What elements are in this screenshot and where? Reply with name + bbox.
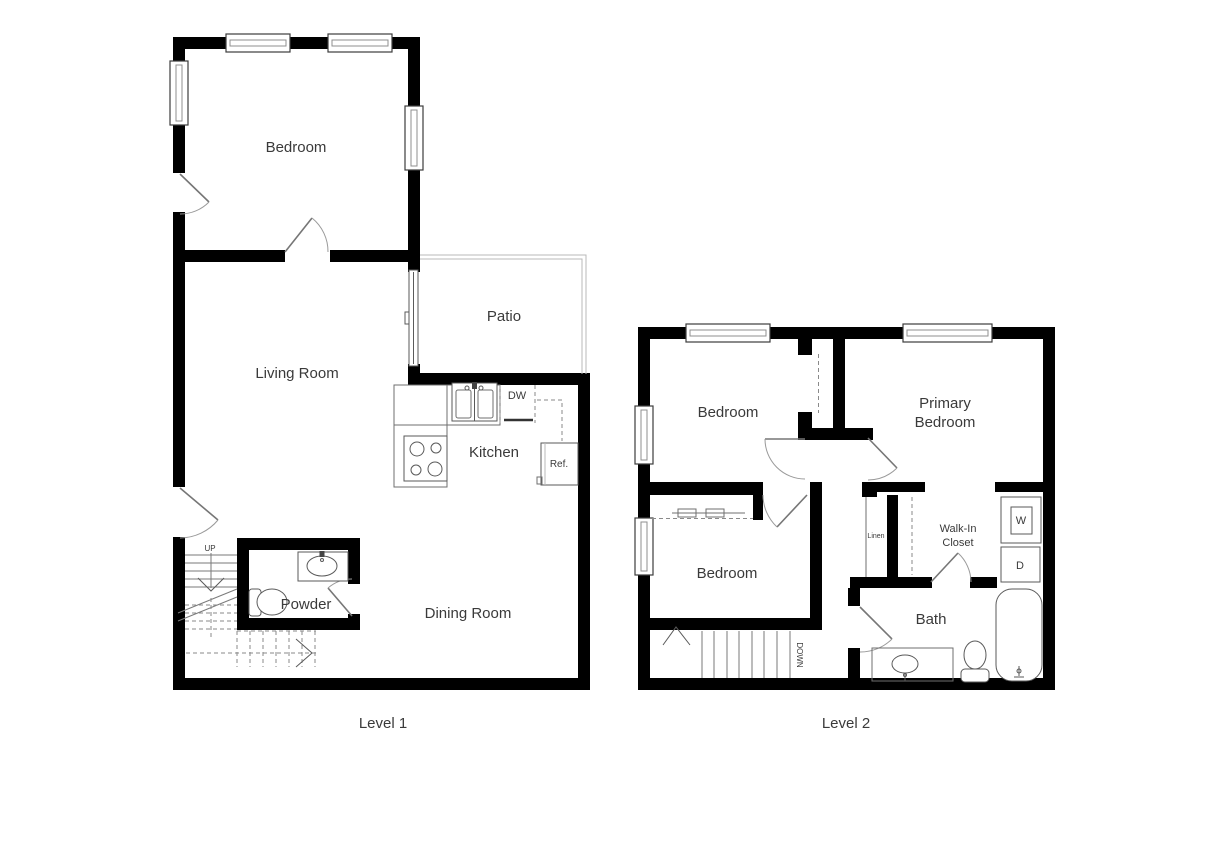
room-label-powder: Powder bbox=[281, 596, 332, 613]
label-dryer: D bbox=[1016, 560, 1024, 572]
floor-plan-page: Bedroom Living Room Patio Kitchen Powder… bbox=[0, 0, 1228, 844]
window-icon bbox=[328, 34, 392, 52]
room-label-linen: Linen bbox=[867, 533, 884, 540]
door-powder bbox=[328, 579, 352, 616]
label-dishwasher: DW bbox=[508, 390, 527, 402]
toilet-icon bbox=[961, 641, 989, 682]
window-icon bbox=[405, 106, 423, 170]
room-label-kitchen: Kitchen bbox=[469, 444, 519, 461]
door-bath bbox=[860, 607, 892, 652]
window-icon bbox=[635, 406, 653, 464]
room-label-bedroom-top: Bedroom bbox=[698, 404, 759, 421]
level2-plan: Bedroom Primary Bedroom Bedroom Walk-In … bbox=[635, 324, 1055, 732]
door-bedroom-bottom bbox=[763, 495, 807, 527]
floor-plan-canvas: Bedroom Living Room Patio Kitchen Powder… bbox=[0, 0, 1228, 844]
door-bedroom bbox=[285, 218, 328, 252]
window-icon bbox=[635, 518, 653, 575]
room-label-walk-in-line2: Closet bbox=[942, 537, 973, 549]
kitchen-fixtures bbox=[394, 382, 578, 487]
room-label-patio: Patio bbox=[487, 308, 521, 325]
closet-details bbox=[652, 354, 912, 577]
bathtub-icon bbox=[996, 589, 1042, 681]
window-icon bbox=[903, 324, 992, 342]
room-label-primary-line1: Primary bbox=[919, 395, 971, 412]
room-label-bath: Bath bbox=[916, 611, 947, 628]
label-washer: W bbox=[1016, 515, 1027, 527]
room-label-walk-in-line1: Walk-In bbox=[940, 523, 977, 535]
level1-plan: Bedroom Living Room Patio Kitchen Powder… bbox=[170, 34, 590, 732]
level1-walls bbox=[173, 37, 590, 690]
window-icon bbox=[226, 34, 290, 52]
bath-fixtures bbox=[872, 589, 1042, 682]
room-label-living-room: Living Room bbox=[255, 365, 338, 382]
label-stairs-down: DOWN bbox=[795, 642, 804, 668]
level1-title: Level 1 bbox=[359, 715, 407, 732]
room-label-primary-line2: Bedroom bbox=[915, 414, 976, 431]
vanity-sink-icon bbox=[872, 648, 953, 681]
room-label-bedroom: Bedroom bbox=[266, 139, 327, 156]
upper-cabinet-dashed bbox=[537, 400, 562, 441]
label-refrigerator: Ref. bbox=[550, 459, 568, 470]
room-label-dining-room: Dining Room bbox=[425, 605, 512, 622]
door-walk-in-closet bbox=[931, 553, 971, 582]
sink-icon bbox=[298, 551, 348, 581]
level2-walls bbox=[638, 327, 1055, 690]
door-bedroom-exterior bbox=[180, 174, 209, 214]
door-entry bbox=[180, 488, 218, 538]
label-stairs-up: UP bbox=[204, 544, 215, 553]
door-bedroom-top bbox=[765, 439, 805, 479]
sink-icon bbox=[452, 382, 497, 421]
door-primary-bedroom bbox=[868, 438, 897, 480]
level2-title: Level 2 bbox=[822, 715, 870, 732]
window-icon bbox=[170, 61, 188, 125]
stairs-down bbox=[663, 627, 790, 678]
sliding-door-icon bbox=[405, 270, 418, 366]
window-icon bbox=[686, 324, 770, 342]
room-label-bedroom-bottom: Bedroom bbox=[697, 565, 758, 582]
stove-icon bbox=[404, 436, 447, 481]
